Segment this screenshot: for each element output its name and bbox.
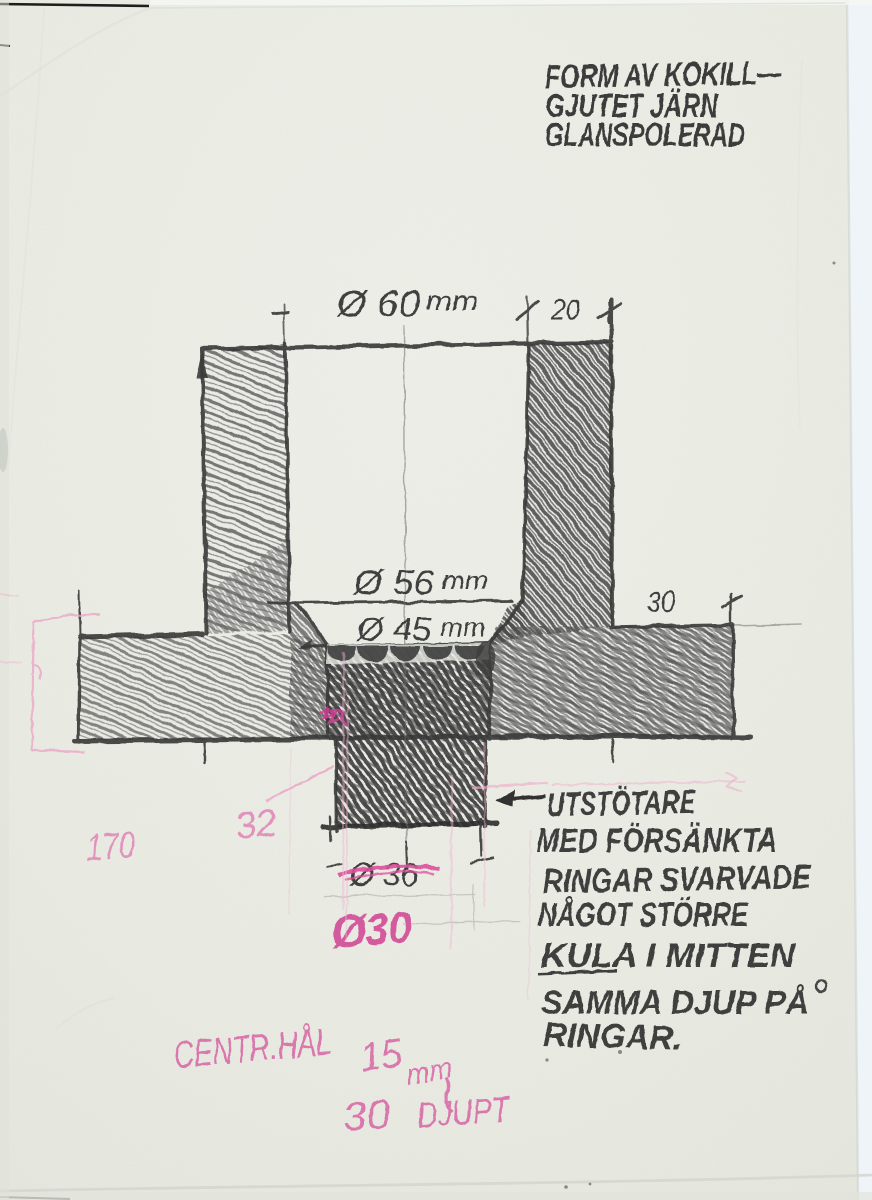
svg-text:30: 30	[647, 586, 675, 619]
svg-text:RINGAR.: RINGAR.	[543, 1016, 683, 1058]
svg-text:GLANSPOLERAD: GLANSPOLERAD	[545, 116, 745, 153]
svg-text:30: 30	[341, 1091, 391, 1140]
svg-text:32: 32	[234, 802, 279, 848]
svg-text:DJUPT: DJUPT	[416, 1088, 513, 1135]
svg-text:Ø 45: Ø 45	[356, 611, 431, 647]
svg-text:20: 20	[550, 294, 580, 327]
svg-text:KULA I MITTEN: KULA I MITTEN	[541, 937, 796, 975]
svg-text:UTSTÖTARE: UTSTÖTARE	[546, 783, 697, 824]
svg-text:30: 30	[363, 903, 414, 955]
svg-text:Ø 60: Ø 60	[336, 283, 420, 324]
svg-text:15: 15	[357, 1029, 405, 1080]
svg-text:RINGAR SVARVADE: RINGAR SVARVADE	[542, 858, 812, 901]
svg-text:MED FÖRSÄNKTA: MED FÖRSÄNKTA	[536, 822, 777, 860]
svg-text:mm: mm	[426, 286, 478, 316]
svg-text:NÅGOT STÖRRE: NÅGOT STÖRRE	[538, 896, 749, 934]
svg-text:170: 170	[85, 825, 137, 870]
svg-text:mm: mm	[440, 614, 486, 642]
svg-text:mm: mm	[442, 567, 488, 595]
svg-text:Ø 56: Ø 56	[353, 564, 434, 602]
